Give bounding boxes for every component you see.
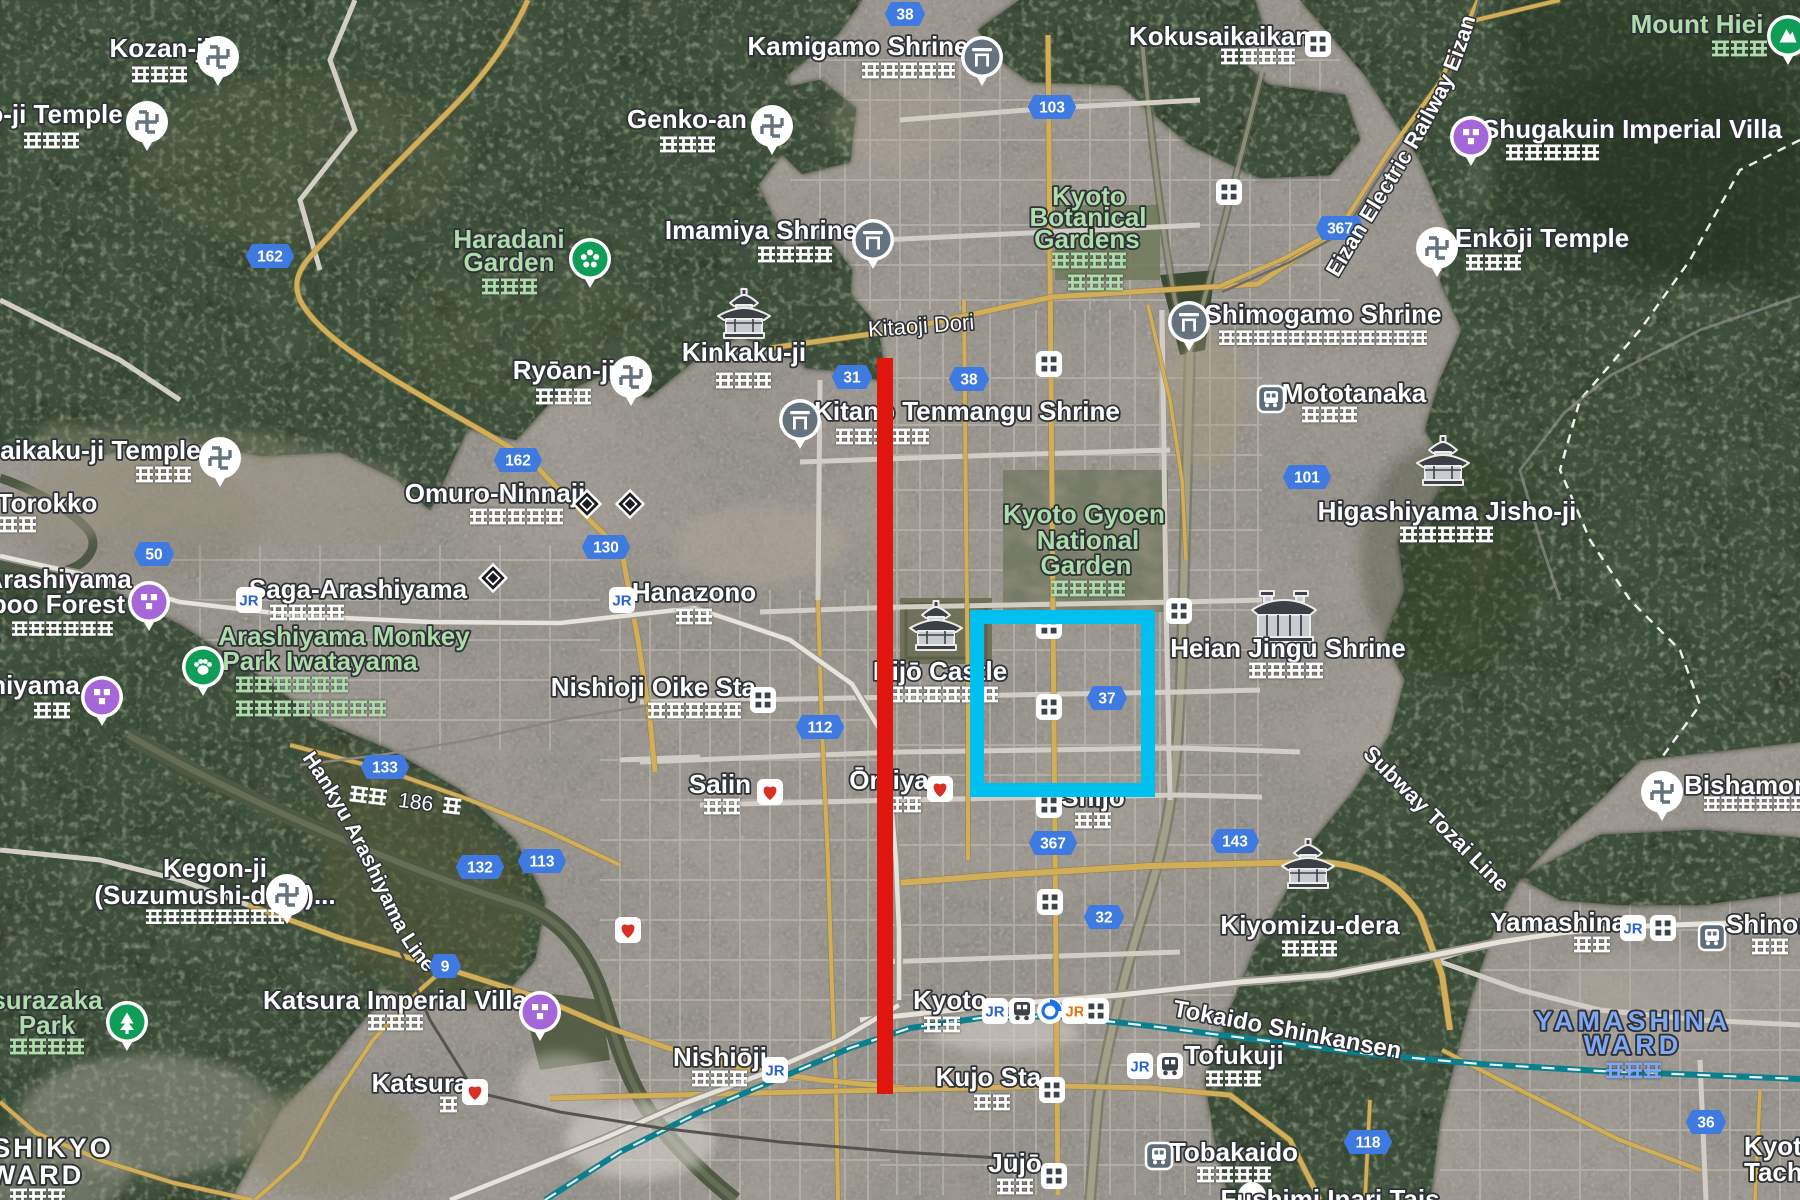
svg-text:Saga-Arashiyama: Saga-Arashiyama [249,574,468,604]
svg-text:Fushimi Inari Tais: Fushimi Inari Tais [1220,1184,1439,1200]
svg-text:Kozan-ji: Kozan-ji [109,33,210,63]
svg-text:Shinon: Shinon [1726,909,1800,939]
svg-text:Kinkaku-ji: Kinkaku-ji [682,337,806,367]
svg-text:Imamiya Shrine: Imamiya Shrine [665,215,857,245]
svg-text:Park Iwatayama: Park Iwatayama [222,646,418,676]
svg-text:Kegon-ji: Kegon-ji [163,853,267,883]
svg-text:hiyama: hiyama [0,670,80,700]
svg-text:Shimogamo Shrine: Shimogamo Shrine [1205,299,1442,329]
svg-text:37: 37 [1098,691,1115,708]
svg-text:Garden: Garden [463,247,554,277]
svg-text:Mototanaka: Mototanaka [1282,378,1427,408]
svg-text:132: 132 [467,860,493,877]
svg-text:Heian Jingu Shrine: Heian Jingu Shrine [1170,633,1406,663]
svg-text:Gardens: Gardens [1034,224,1140,254]
svg-text:133: 133 [372,760,398,777]
svg-text:38: 38 [960,372,978,389]
svg-text:Bishamon: Bishamon [1684,770,1800,800]
svg-text:Garden: Garden [1040,550,1131,580]
svg-text:SHIKYO: SHIKYO [0,1133,114,1163]
svg-text:130: 130 [593,540,619,557]
svg-text:Jūjō: Jūjō [988,1148,1041,1178]
svg-text:162: 162 [505,453,531,470]
svg-text:50: 50 [145,547,162,564]
svg-text:Kamigamo Shrine: Kamigamo Shrine [747,31,968,61]
svg-text:Kiyomizu-dera: Kiyomizu-dera [1220,910,1400,940]
svg-text:Omuro-Ninnaji: Omuro-Ninnaji [405,478,586,508]
svg-text:36: 36 [1697,1115,1715,1132]
svg-text:Tobakaido: Tobakaido [1170,1137,1298,1167]
svg-text:Hanazono: Hanazono [632,577,756,607]
svg-text:Higashiyama Jisho-ji: Higashiyama Jisho-ji [1318,496,1577,526]
svg-text:Nishioji Oike Sta.: Nishioji Oike Sta. [551,672,763,702]
svg-text:162: 162 [257,249,283,266]
svg-text:101: 101 [1294,470,1320,487]
svg-text:WARD: WARD [0,1160,84,1190]
svg-text:Daikaku-ji Temple: Daikaku-ji Temple [0,435,201,465]
svg-text:Yamashina: Yamashina [1490,907,1626,937]
svg-text:Ryōan-ji: Ryōan-ji [513,355,616,385]
svg-text:118: 118 [1355,1135,1380,1152]
svg-text:38: 38 [896,7,914,24]
svg-text:143: 143 [1222,834,1248,851]
svg-text:367: 367 [1040,836,1066,853]
svg-text:o-ji Temple: o-ji Temple [0,99,123,129]
svg-text:186: 186 [397,789,435,816]
svg-text:9: 9 [441,959,450,976]
svg-text:Mount Hiei: Mount Hiei [1631,9,1764,39]
svg-text:Shugakuin Imperial Villa: Shugakuin Imperial Villa [1482,114,1783,144]
svg-text:Nishiōji: Nishiōji [673,1042,767,1072]
svg-text:Katsura: Katsura [372,1068,469,1098]
svg-text:boo Forest: boo Forest [0,589,125,619]
svg-text:WARD: WARD [1584,1030,1683,1060]
svg-text:Katsura Imperial Villa: Katsura Imperial Villa [263,985,528,1015]
svg-text:Kokusaikaikan: Kokusaikaikan [1129,21,1311,51]
svg-text:Tach: Tach [1744,1157,1800,1187]
svg-text:Tofukuji: Tofukuji [1184,1040,1283,1070]
svg-text:32: 32 [1095,910,1112,927]
svg-text:Kujo Sta.: Kujo Sta. [936,1062,1049,1092]
svg-text:Saiin: Saiin [689,769,751,799]
svg-text:113: 113 [529,854,554,871]
svg-text:Kitano Tenmangu Shrine: Kitano Tenmangu Shrine [814,396,1120,426]
svg-text:112: 112 [807,720,832,737]
svg-text:Torokko: Torokko [0,488,97,518]
svg-text:103: 103 [1039,100,1065,117]
svg-text:Enkōji Temple: Enkōji Temple [1455,223,1629,253]
svg-text:31: 31 [843,370,861,387]
svg-text:Kyoto: Kyoto [913,985,987,1015]
svg-text:Genko-an: Genko-an [627,104,747,134]
svg-text:Park: Park [19,1010,76,1040]
